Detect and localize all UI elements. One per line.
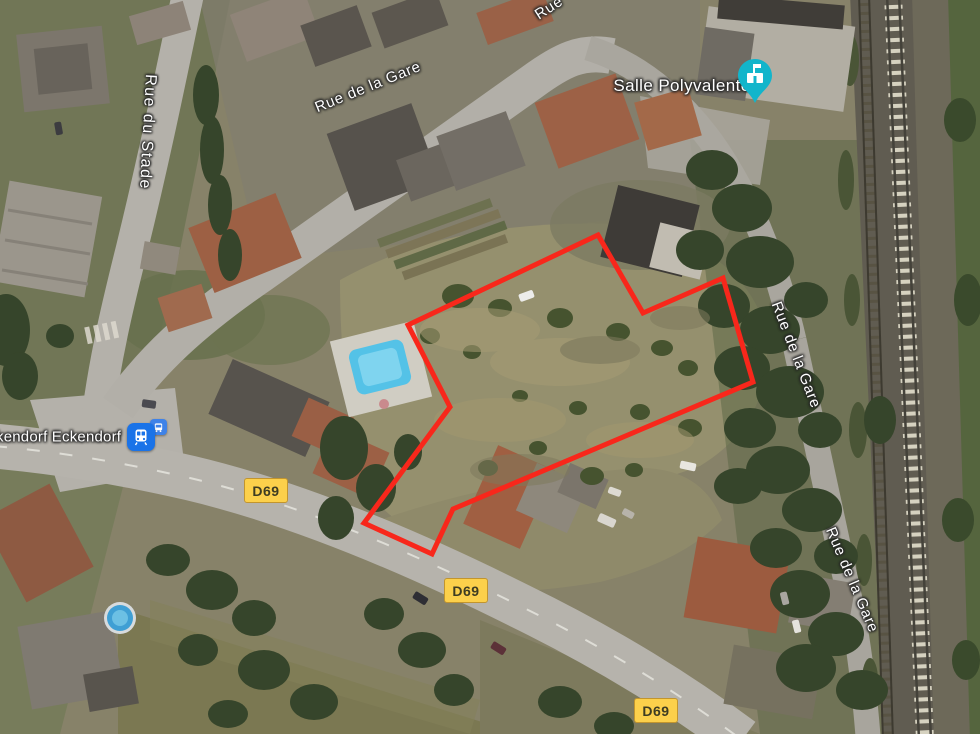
transit-stop-label[interactable]: kendorf Eckendorf xyxy=(0,429,121,446)
route-badge-d69-1[interactable]: D69 xyxy=(244,478,288,503)
civic-building-pin-icon[interactable] xyxy=(737,58,773,104)
route-badge-d69-2[interactable]: D69 xyxy=(444,578,488,603)
round-pool xyxy=(104,602,136,634)
poi-label-salle-polyvalente[interactable]: Salle Polyvalente xyxy=(613,76,750,96)
route-badge-d69-3[interactable]: D69 xyxy=(634,698,678,723)
train-icon[interactable] xyxy=(127,423,155,451)
satellite-map-view[interactable]: Rue du Stade Rue de la Gare Rue Rue de l… xyxy=(0,0,980,734)
